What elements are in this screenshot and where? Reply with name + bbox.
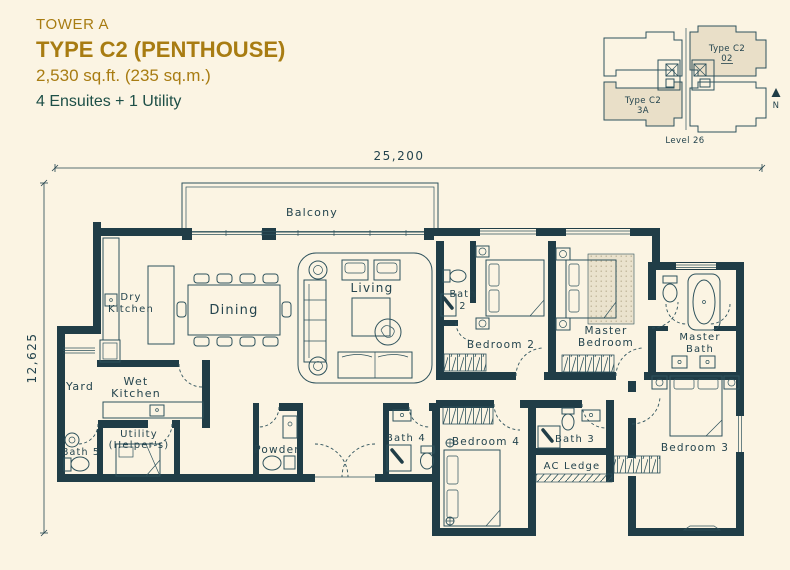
room-label-master-bath-2: Bath: [686, 344, 714, 355]
furniture-living: [298, 253, 432, 383]
dimension-top: 25,200: [52, 149, 765, 172]
furniture-powder: [263, 416, 297, 470]
floorplan-page: TOWER A TYPE C2 (PENTHOUSE) 2,530 sq.ft.…: [0, 0, 790, 570]
room-label-dry-kitchen-2: Kitchen: [108, 304, 154, 315]
room-label-utility-1: Utility: [120, 429, 158, 440]
room-label-yard: Yard: [65, 380, 94, 393]
room-label-bath5: Bath 5: [62, 447, 100, 458]
room-label-bedroom3: Bedroom 3: [661, 442, 729, 454]
room-label-powder: Powder: [254, 444, 300, 456]
room-label-bath4: Bath 4: [386, 433, 426, 444]
room-label-bedroom2: Bedroom 2: [467, 339, 535, 351]
room-label-dining: Dining: [209, 303, 258, 318]
room-label-master-bedroom-1: Master: [584, 325, 627, 337]
room-label-balcony: Balcony: [286, 206, 338, 219]
room-label-bath3: Bath 3: [555, 434, 595, 445]
room-label-wet-kitchen-2: Kitchen: [111, 387, 161, 400]
room-label-ac-ledge: AC Ledge: [544, 461, 601, 472]
room-label-bedroom4: Bedroom 4: [452, 436, 520, 448]
furniture-master-bedroom: [556, 248, 634, 372]
dimension-left-value: 12,625: [25, 333, 39, 384]
ac-ledge-louvers: [536, 474, 612, 482]
room-label-master-bedroom-2: Bedroom: [578, 337, 634, 349]
floor-plan: 25,200 12,625: [0, 0, 790, 570]
furniture-bedroom4: [443, 407, 500, 526]
dimension-left: 12,625: [25, 180, 48, 536]
room-label-living: Living: [351, 281, 394, 295]
room-label-dry-kitchen-1: Dry: [120, 292, 141, 303]
dimension-top-value: 25,200: [374, 149, 425, 163]
room-label-utility-2: (Helper's): [109, 440, 170, 451]
room-label-master-bath-1: Master: [679, 332, 720, 343]
room-label-bath2-2: 2: [459, 301, 466, 312]
furniture-wet-kitchen: [103, 402, 203, 418]
windows: [63, 229, 744, 452]
room-label-bath2-1: Bath: [450, 289, 477, 300]
